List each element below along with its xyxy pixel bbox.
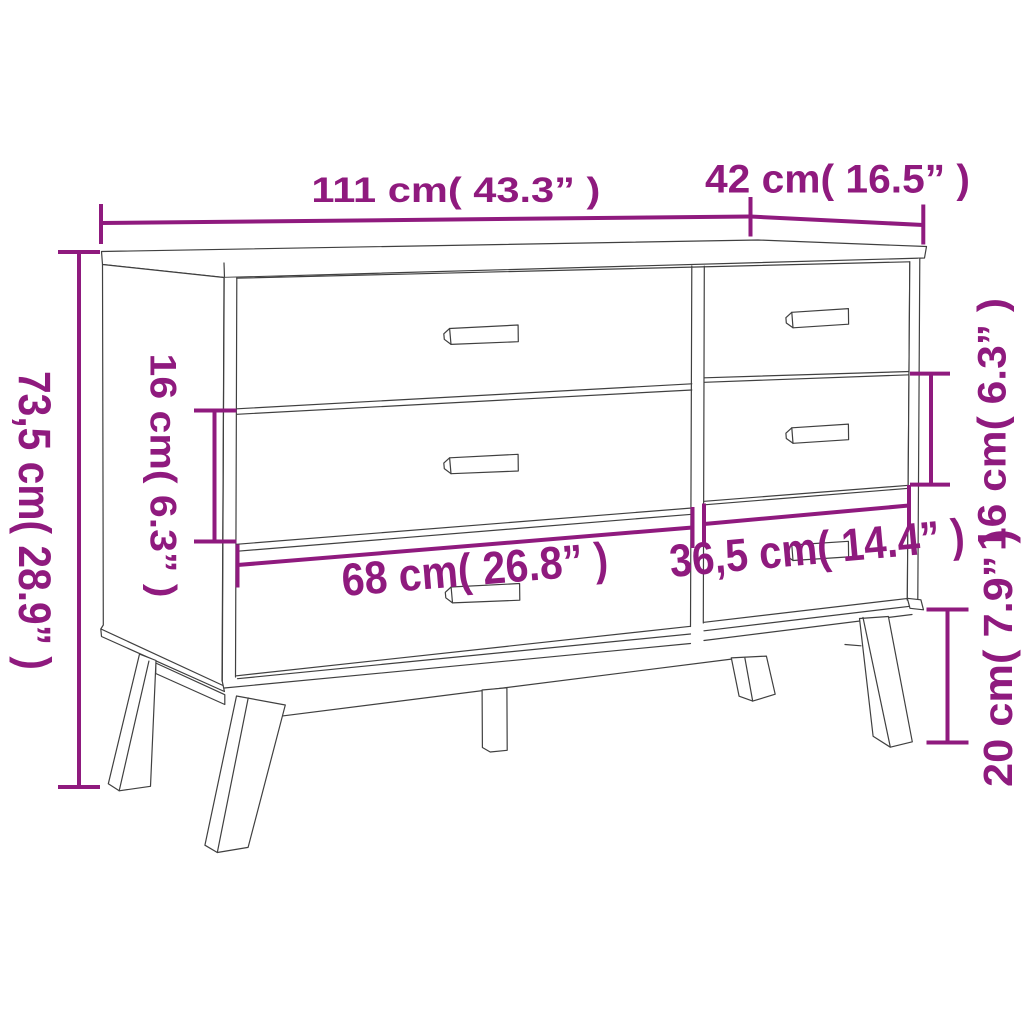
svg-text:20 cm( 7.9” ): 20 cm( 7.9” )	[975, 529, 1021, 787]
svg-text:73,5 cm( 28.9” ): 73,5 cm( 28.9” )	[9, 371, 60, 670]
svg-text:42 cm( 16.5” ): 42 cm( 16.5” )	[705, 158, 970, 202]
svg-text:111 cm( 43.3” ): 111 cm( 43.3” )	[311, 170, 600, 210]
svg-text:16 cm( 6.3” ): 16 cm( 6.3” )	[143, 354, 185, 598]
svg-text:16 cm( 6.3” ): 16 cm( 6.3” )	[971, 298, 1015, 551]
